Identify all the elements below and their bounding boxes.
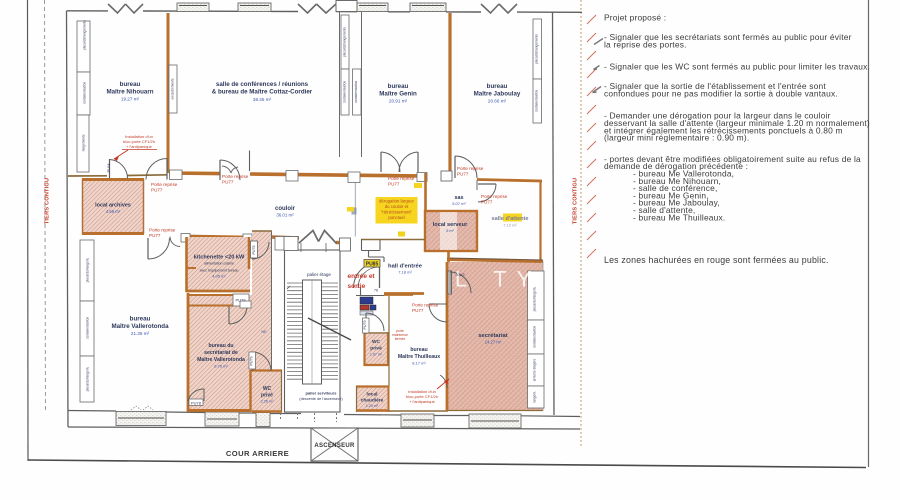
svg-text:1.29 m²: 1.29 m²: [366, 404, 379, 408]
svg-text:placards/rangem.: placards/rangem.: [86, 258, 90, 283]
svg-text:chaudière: chaudière: [361, 398, 384, 404]
svg-text:+ l'antipanique: + l'antipanique: [409, 399, 436, 404]
svg-text:PU77: PU77: [149, 233, 161, 238]
svg-text:PU78: PU78: [191, 401, 202, 406]
svg-text:COUR ARRIERE: COUR ARRIERE: [226, 449, 289, 458]
svg-text:Y: Y: [517, 267, 532, 292]
svg-text:5 m²: 5 m²: [446, 229, 454, 233]
svg-text:4.59 m²: 4.59 m²: [106, 209, 121, 214]
svg-text:salle de conférences / réunion: salle de conférences / réunions: [216, 81, 309, 88]
svg-text:placards/rangements: placards/rangements: [343, 27, 347, 57]
svg-text:L: L: [455, 267, 467, 292]
svg-text:sortie: sortie: [348, 283, 366, 290]
svg-text:Porte reprise: Porte reprise: [457, 166, 484, 171]
svg-text:PU77: PU77: [412, 308, 424, 313]
svg-text:local serveur: local serveur: [433, 222, 468, 228]
svg-text:la reprise des portes.: la reprise des portes.: [604, 39, 687, 49]
svg-text:7.12 m²: 7.12 m²: [503, 223, 517, 228]
svg-text:9-1/2: 9-1/2: [455, 272, 465, 277]
svg-text:placards/rangements: placards/rangements: [83, 20, 87, 50]
svg-text:local archives: local archives: [95, 203, 131, 209]
svg-text:(descente de l'ascenseur): (descente de l'ascenseur): [299, 397, 343, 401]
svg-text:PU77: PU77: [457, 172, 469, 177]
svg-text:Porte reprise: Porte reprise: [412, 303, 439, 308]
svg-text:19.27 m²: 19.27 m²: [121, 97, 140, 102]
svg-text:21.36 m²: 21.36 m²: [131, 331, 150, 336]
svg-text:privé: privé: [261, 393, 273, 399]
svg-text:Maître Genin: Maître Genin: [379, 91, 417, 98]
svg-text:bureau du: bureau du: [208, 343, 233, 349]
svg-text:PU77: PU77: [481, 200, 493, 205]
svg-text:Maître Thuilleaux: Maître Thuilleaux: [398, 354, 440, 360]
svg-text:secrétariat: secrétariat: [478, 333, 507, 339]
svg-text:containerisation: containerisation: [83, 82, 87, 105]
svg-text:entrée et: entrée et: [348, 273, 376, 280]
svg-text:kitchenette <20 kW: kitchenette <20 kW: [194, 255, 245, 261]
svg-text:2.26 m²: 2.26 m²: [261, 400, 275, 404]
svg-text:Porte reprise: Porte reprise: [151, 182, 178, 187]
svg-text:confondues pour ne pas modifie: confondues pour ne pas modifier la sorti…: [604, 89, 838, 99]
svg-text:alimentation cuisine: alimentation cuisine: [204, 262, 234, 266]
svg-text:bureau: bureau: [487, 83, 508, 90]
svg-text:TIERS CONTIGU: TIERS CONTIGU: [573, 178, 579, 224]
svg-text:7.18 m²: 7.18 m²: [398, 270, 412, 275]
svg-text:couloir: couloir: [275, 206, 296, 212]
svg-text:8.17 m²: 8.17 m²: [412, 361, 426, 366]
svg-text:containerisation: containerisation: [86, 317, 90, 340]
svg-text:TIERS CONTIGU: TIERS CONTIGU: [45, 178, 51, 224]
svg-text:avec l'équipement bureau: avec l'équipement bureau: [200, 269, 239, 273]
svg-text:rangem.: rangem.: [533, 391, 537, 403]
svg-text:WC: WC: [263, 386, 272, 392]
svg-text:Maître Jaboulay: Maître Jaboulay: [474, 91, 521, 98]
svg-text:38.45 m²: 38.45 m²: [253, 97, 272, 102]
svg-text:secrétariat de: secrétariat de: [204, 350, 238, 356]
svg-text:1.07 m²: 1.07 m²: [370, 353, 383, 357]
svg-text:salle d'attente: salle d'attente: [491, 216, 528, 222]
svg-text:+ l'antipanique: + l'antipanique: [126, 144, 153, 149]
svg-text:armoire étagère: armoire étagère: [533, 359, 537, 382]
svg-text:36.01 m²: 36.01 m²: [276, 213, 294, 218]
svg-text:- Signaler que les WC sont fer: - Signaler que les WC sont fermés au pub…: [604, 62, 870, 72]
svg-text:PU79: PU79: [250, 357, 254, 366]
svg-text:T: T: [493, 267, 506, 292]
svg-text:bureau: bureau: [388, 83, 409, 90]
svg-text:& bureau de Maître Cottaz-Cord: & bureau de Maître Cottaz-Cordier: [212, 89, 313, 96]
svg-text:containerisation: containerisation: [533, 326, 537, 349]
svg-text:placards/rangements: placards/rangements: [535, 34, 539, 64]
svg-text:WC: WC: [372, 339, 381, 345]
svg-text:Les zones hachurées en rouge s: Les zones hachurées en rouge sont fermée…: [604, 255, 829, 265]
svg-text:Maître Vallerotonda: Maître Vallerotonda: [111, 323, 169, 330]
svg-text:Porte reprise: Porte reprise: [388, 176, 415, 181]
svg-text:ASCENSEUR: ASCENSEUR: [314, 443, 355, 449]
svg-text:Porte reprise: Porte reprise: [481, 194, 508, 199]
svg-text:Porte reprise: Porte reprise: [222, 174, 249, 179]
svg-text:NE: NE: [261, 330, 267, 334]
svg-text:placards/rangem.: placards/rangem.: [86, 367, 90, 392]
svg-text:PU77: PU77: [388, 182, 400, 187]
svg-text:6.76 m²: 6.76 m²: [214, 364, 228, 369]
svg-text:privé: privé: [370, 346, 382, 352]
svg-text:dérogation largeur: dérogation largeur: [379, 199, 414, 204]
svg-text:20.91 m²: 20.91 m²: [389, 99, 408, 104]
svg-text:placards/rangem.: placards/rangem.: [533, 287, 537, 312]
svg-text:bureau: bureau: [410, 347, 427, 353]
svg-text:encastrements: encastrements: [171, 78, 175, 99]
svg-text:palier étage: palier étage: [307, 272, 331, 277]
svg-text:bureau: bureau: [120, 81, 141, 88]
svg-text:4.05 m²: 4.05 m²: [212, 274, 226, 279]
svg-text:rangements: rangements: [82, 134, 86, 151]
svg-text:PU85: PU85: [366, 262, 379, 268]
svg-text:(largeur mini réglementaire :: (largeur mini réglementaire : 0.90 m).: [604, 133, 749, 143]
svg-text:Porte reprise: Porte reprise: [149, 228, 176, 233]
svg-text:20.66 m²: 20.66 m²: [488, 99, 507, 104]
svg-text:PU77: PU77: [151, 188, 163, 193]
svg-text:76: 76: [374, 289, 378, 293]
svg-text:PU79: PU79: [363, 321, 367, 330]
svg-text:containerisation: containerisation: [354, 81, 358, 104]
svg-text:Maître Vallerotonda: Maître Vallerotonda: [197, 357, 245, 363]
svg-text:14.27 m²: 14.27 m²: [485, 340, 502, 345]
svg-text:5.07 m²: 5.07 m²: [452, 201, 466, 206]
svg-text:local: local: [367, 392, 378, 398]
svg-text:Maître Nihouarn: Maître Nihouarn: [106, 89, 153, 96]
svg-text:PUM: PUM: [106, 164, 111, 173]
svg-text:du couloir et: du couloir et: [385, 204, 409, 209]
svg-text:Projet proposé :: Projet proposé :: [604, 13, 666, 23]
svg-text:bureau: bureau: [130, 316, 151, 323]
svg-text:containerisation: containerisation: [535, 90, 539, 113]
svg-text:palier serviteurs: palier serviteurs: [306, 391, 338, 396]
svg-text:containerisation: containerisation: [343, 81, 347, 104]
svg-text:- bureau Me Thuilleaux.: - bureau Me Thuilleaux.: [633, 212, 725, 222]
svg-text:"rétrécissement": "rétrécissement": [381, 210, 413, 215]
svg-text:PU77: PU77: [222, 180, 234, 185]
svg-text:PU78: PU78: [252, 246, 256, 255]
svg-text:PU79: PU79: [235, 298, 246, 303]
svg-text:ponctuel: ponctuel: [388, 215, 404, 220]
svg-text:fermée: fermée: [395, 337, 406, 341]
